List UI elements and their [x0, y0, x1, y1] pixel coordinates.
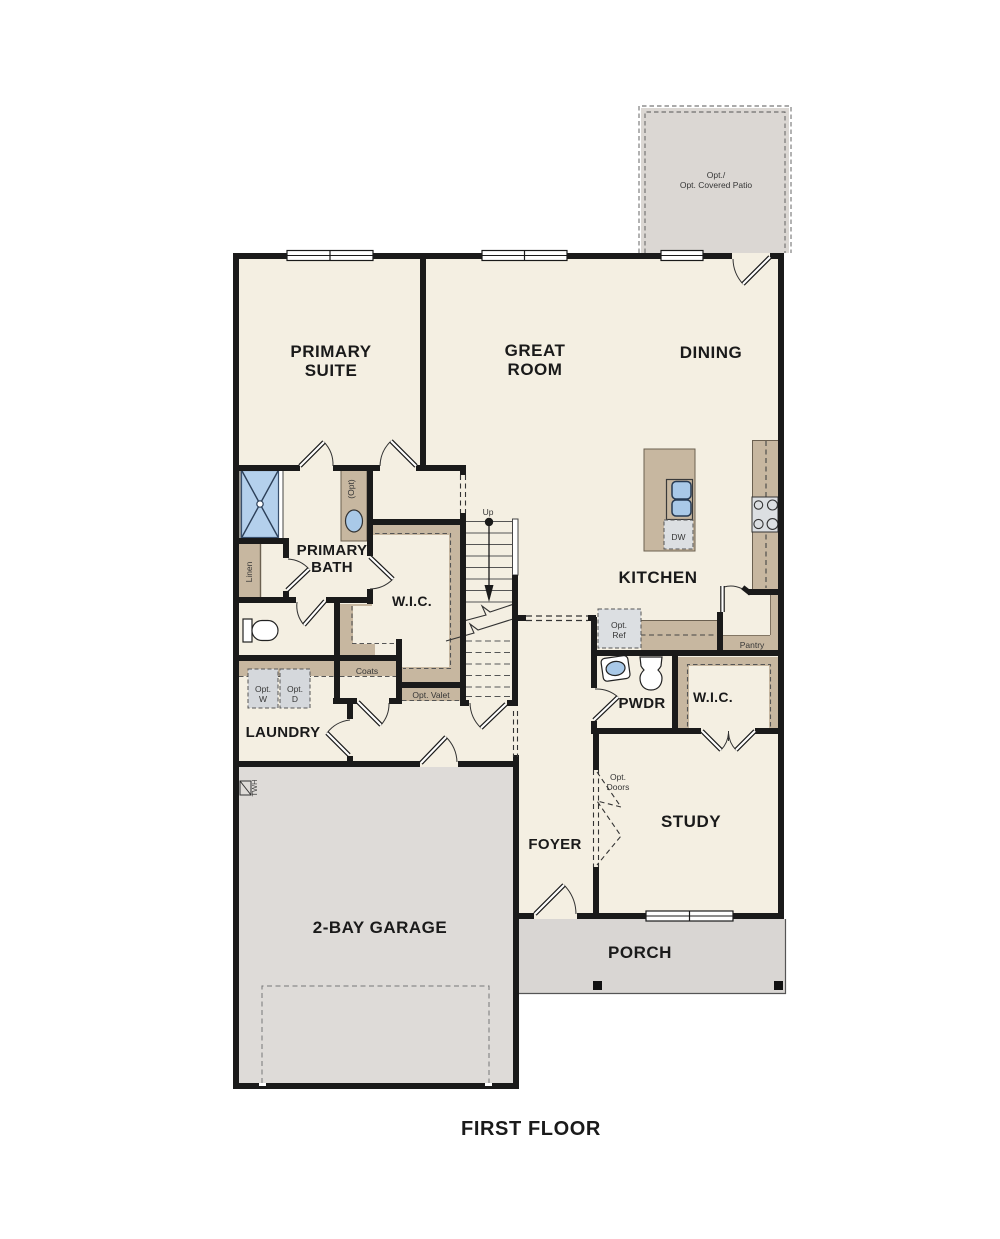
svg-text:Up: Up — [483, 507, 494, 517]
svg-text:TWH: TWH — [250, 779, 259, 796]
svg-text:Opt.: Opt. — [610, 772, 626, 782]
svg-text:ROOM: ROOM — [508, 360, 563, 379]
svg-text:Opt.: Opt. — [611, 620, 627, 630]
svg-text:FOYER: FOYER — [528, 836, 581, 853]
svg-text:Opt.: Opt. — [255, 684, 271, 694]
svg-text:W.I.C.: W.I.C. — [392, 593, 432, 609]
svg-text:Ref: Ref — [612, 630, 626, 640]
svg-text:Opt. Covered Patio: Opt. Covered Patio — [680, 180, 753, 190]
svg-text:DW: DW — [671, 532, 685, 542]
svg-text:KITCHEN: KITCHEN — [618, 568, 697, 587]
svg-text:SUITE: SUITE — [305, 361, 358, 380]
svg-text:Linen: Linen — [244, 561, 254, 582]
svg-text:Pantry: Pantry — [740, 640, 765, 650]
svg-text:PRIMARY: PRIMARY — [297, 542, 368, 559]
svg-text:STUDY: STUDY — [661, 812, 721, 831]
svg-text:Coats: Coats — [356, 666, 378, 676]
svg-text:D: D — [292, 694, 298, 704]
svg-text:Doors: Doors — [607, 782, 630, 792]
svg-text:BATH: BATH — [311, 559, 353, 576]
svg-text:LAUNDRY: LAUNDRY — [246, 724, 321, 741]
svg-text:Opt./: Opt./ — [707, 170, 726, 180]
svg-text:W: W — [259, 694, 267, 704]
svg-text:W.I.C.: W.I.C. — [693, 689, 733, 705]
svg-text:DINING: DINING — [680, 343, 743, 362]
svg-text:GREAT: GREAT — [505, 341, 566, 360]
svg-text:Opt. Valet: Opt. Valet — [412, 690, 450, 700]
svg-text:(Opt): (Opt) — [346, 479, 356, 499]
svg-text:PWDR: PWDR — [618, 695, 665, 712]
svg-text:PRIMARY: PRIMARY — [290, 342, 371, 361]
svg-text:Opt.: Opt. — [287, 684, 303, 694]
svg-text:2-BAY GARAGE: 2-BAY GARAGE — [313, 918, 447, 937]
svg-text:FIRST FLOOR: FIRST FLOOR — [461, 1118, 601, 1140]
svg-text:PORCH: PORCH — [608, 943, 672, 962]
